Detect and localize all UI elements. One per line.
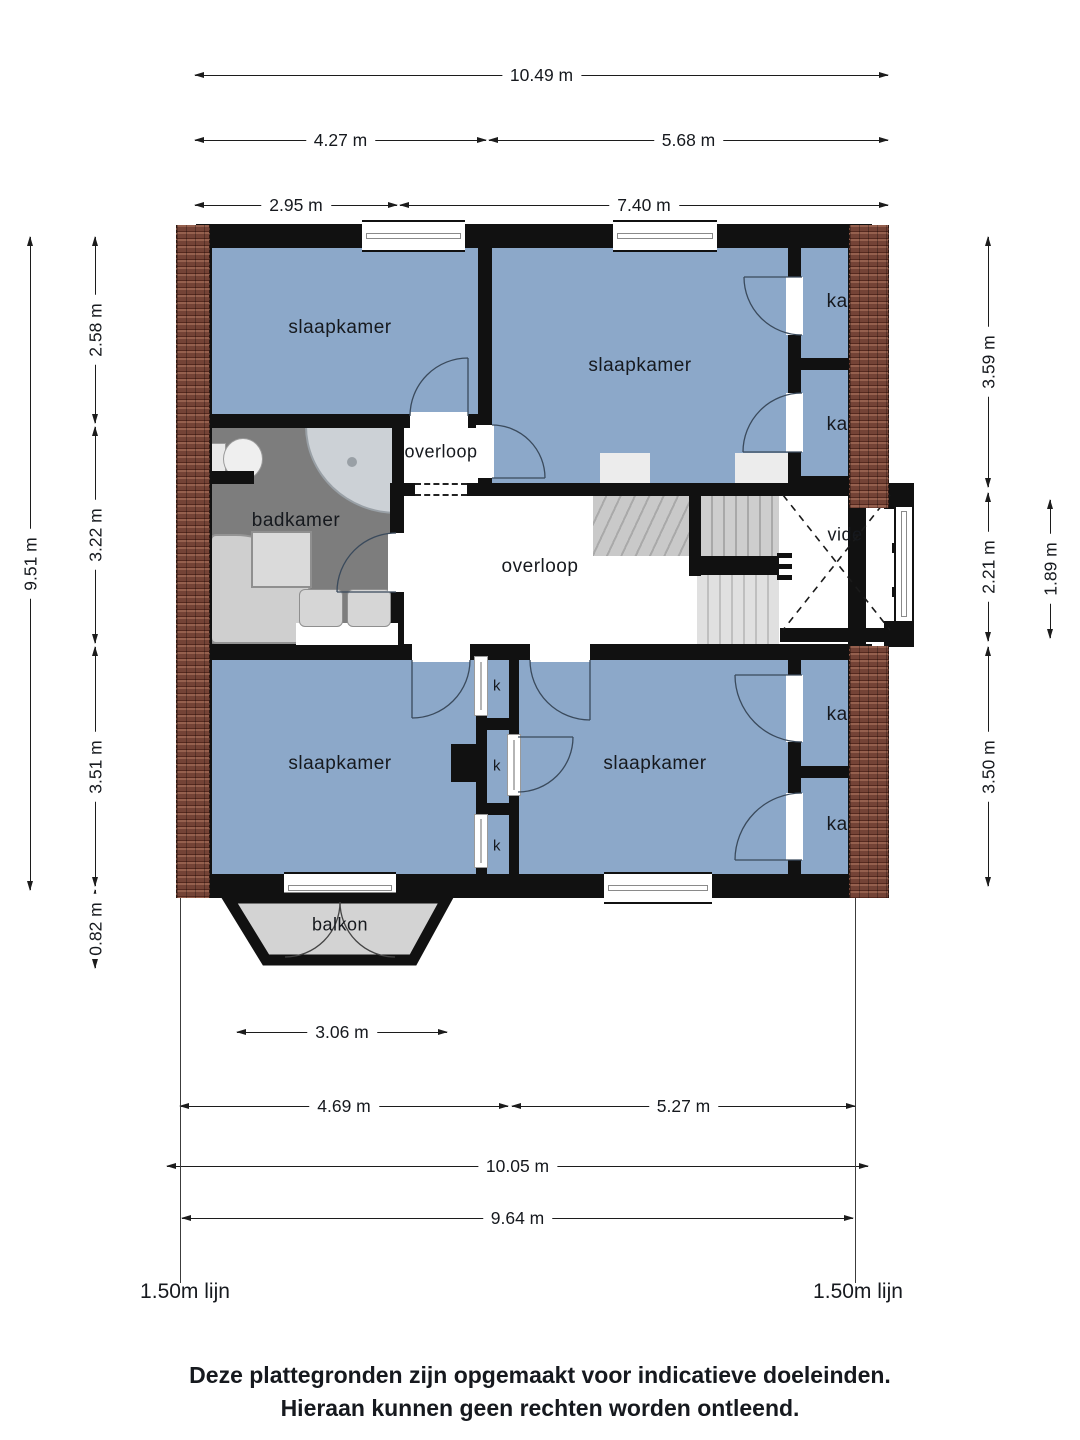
dim-label: 9.64 m: [483, 1208, 553, 1229]
dim-label: 1.89 m: [1041, 534, 1062, 604]
room-label-bathroom: badkamer: [252, 510, 341, 532]
dim-label: 3.51 m: [86, 732, 107, 802]
room-label-balcony: balkon: [312, 915, 368, 936]
room-label-bedroom: slaapkamer: [288, 317, 391, 339]
dim-label: 4.27 m: [306, 130, 376, 151]
dim-label: 5.68 m: [654, 130, 724, 151]
dim-bottom-right: 5.27 m: [512, 1106, 855, 1107]
dim-label: 3.50 m: [979, 732, 1000, 802]
room-label-landing: overloop: [502, 556, 579, 578]
dim-label: 10.49 m: [502, 65, 581, 86]
dim-label: 3.06 m: [307, 1022, 377, 1043]
dim-bottom-left: 4.69 m: [180, 1106, 508, 1107]
dim-label: 3.59 m: [979, 327, 1000, 397]
dim-label: 9.51 m: [21, 529, 42, 599]
dim-height-top: 2.58 m: [95, 237, 96, 423]
room-label-landing: overloop: [404, 442, 477, 463]
dim-label: 0.82 m: [86, 894, 107, 964]
guide-label-left: 1.50m lijn: [140, 1280, 230, 1304]
dim-width-left2: 2.95 m: [195, 205, 397, 206]
roof-edge-left: [176, 225, 210, 898]
room-label-bedroom: slaapkamer: [603, 753, 706, 775]
room-label-bedroom: slaapkamer: [288, 753, 391, 775]
dim-label: 4.69 m: [309, 1096, 379, 1117]
room-label-closet-k: k: [493, 758, 501, 775]
dim-bottom-inner: 9.64 m: [182, 1218, 853, 1219]
dim-total-width: 10.49 m: [195, 75, 888, 76]
roof-edge-right-bottom: [849, 646, 889, 898]
dim-label: 2.21 m: [979, 532, 1000, 602]
dim-label: 10.05 m: [478, 1156, 557, 1177]
room-label-bedroom: slaapkamer: [588, 355, 691, 377]
disclaimer-line-1: Deze plattegronden zijn opgemaakt voor i…: [0, 1362, 1080, 1389]
floor-plan-page: slaapkamer slaapkamer kast kast badkamer…: [0, 0, 1080, 1440]
dim-right-top: 3.59 m: [988, 237, 989, 487]
dim-right-bottom: 3.50 m: [988, 647, 989, 886]
dim-width-left: 4.27 m: [195, 140, 486, 141]
roof-edge-right-top: [849, 225, 889, 508]
dim-height-bottom: 3.51 m: [95, 647, 96, 886]
dim-width-right: 5.68 m: [489, 140, 888, 141]
dim-balcony-depth: 0.82 m: [95, 890, 96, 968]
dim-right-middle: 2.21 m: [988, 493, 989, 641]
dim-label: 7.40 m: [609, 195, 679, 216]
dim-balcony-width: 3.06 m: [237, 1032, 447, 1033]
dim-total-height: 9.51 m: [30, 237, 31, 890]
dim-height-middle: 3.22 m: [95, 427, 96, 643]
dim-label: 2.58 m: [86, 295, 107, 365]
guide-line-left: [180, 898, 181, 1283]
dim-label: 5.27 m: [649, 1096, 719, 1117]
disclaimer-line-2: Hieraan kunnen geen rechten worden ontle…: [0, 1395, 1080, 1422]
dim-void-height: 1.89 m: [1050, 500, 1051, 638]
room-label-void: vide: [827, 525, 862, 546]
guide-label-right: 1.50m lijn: [813, 1280, 903, 1304]
guide-line-right: [855, 898, 856, 1283]
room-label-closet-k: k: [493, 678, 501, 695]
dim-label: 2.95 m: [261, 195, 331, 216]
dim-bottom-total: 10.05 m: [167, 1166, 868, 1167]
room-label-closet-k: k: [493, 838, 501, 855]
dim-label: 3.22 m: [86, 500, 107, 570]
dim-width-right2: 7.40 m: [400, 205, 888, 206]
